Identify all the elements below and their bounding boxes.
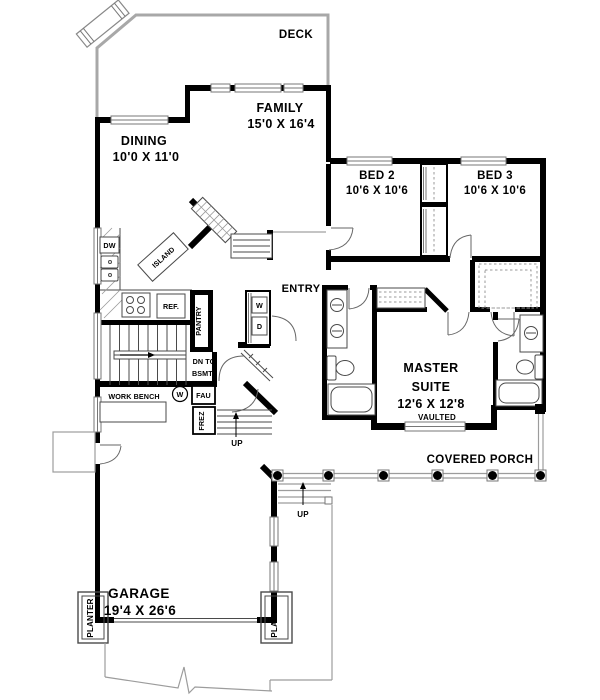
master-note: VAULTED <box>418 413 456 422</box>
fau-label: FAU <box>196 391 211 400</box>
laundry-closet: W D <box>246 291 270 345</box>
garage-label: GARAGE <box>108 586 170 601</box>
bed3-dims: 10'6 X 10'6 <box>464 185 526 197</box>
kitchen: DW REF. ISLAND PANTRY <box>100 228 213 352</box>
stove <box>122 293 150 317</box>
front-door <box>219 350 273 381</box>
fireplace <box>191 197 326 258</box>
dining-dims: 10'0 X 11'0 <box>113 150 180 164</box>
master-label-1: MASTER <box>403 361 458 375</box>
bed3-window <box>461 157 506 165</box>
bed2-label: BED 2 <box>359 170 395 182</box>
refrigerator: REF. <box>157 294 185 318</box>
bed2-dims: 10'6 X 10'6 <box>346 185 408 197</box>
garage-up-label: UP <box>231 439 243 448</box>
deck-label: DECK <box>279 29 313 41</box>
refrigerator-label: REF. <box>163 302 179 311</box>
covered-porch-label: COVERED PORCH <box>427 454 534 466</box>
deck-stairs <box>76 0 129 47</box>
island: ISLAND <box>138 233 188 281</box>
dining-window <box>111 116 168 124</box>
planter-left-label: PLANTER <box>86 598 95 637</box>
bed3-label: BED 3 <box>477 170 513 182</box>
master-dims: 12'6 X 12'8 <box>397 397 464 411</box>
bed2-window <box>347 157 392 165</box>
dishwasher: DW <box>100 237 119 253</box>
entry-porch-steps: UP <box>278 482 332 519</box>
kitchen-sink <box>101 256 118 281</box>
floor-plan-page: DW REF. ISLAND PANTRY <box>0 0 600 700</box>
dn-to-label: DN TO <box>193 357 216 366</box>
washer-circle-label: W <box>177 390 184 399</box>
work-bench-label: WORK BENCH <box>108 392 159 401</box>
dining-label: DINING <box>121 134 167 148</box>
entry-up-label: UP <box>297 510 309 519</box>
left-wall-windows <box>94 228 101 432</box>
pantry: PANTRY <box>190 290 213 352</box>
fau-unit: FAU <box>192 386 215 404</box>
garage-door <box>114 619 257 623</box>
master-bath <box>496 315 543 406</box>
entry-label: ENTRY <box>282 283 321 295</box>
freezer-unit: FREZ <box>193 407 215 434</box>
family-label: FAMILY <box>256 101 303 115</box>
master-wardrobe <box>377 288 425 308</box>
washer-label: W <box>256 301 263 310</box>
side-stoop <box>53 432 95 472</box>
family-window <box>211 84 303 92</box>
garage-dims: 19'4 X 26'6 <box>104 603 176 618</box>
bsmt-label: BSMT. <box>192 369 214 378</box>
family-dims: 15'0 X 16'4 <box>247 117 314 131</box>
utility-area: WORK BENCH W FAU FREZ UP <box>100 386 272 448</box>
floor-plan-drawing: DW REF. ISLAND PANTRY <box>0 0 600 700</box>
master-window <box>405 422 465 431</box>
dryer-label: D <box>257 322 262 331</box>
walkin-closet <box>479 264 537 308</box>
master-label-2: SUITE <box>412 380 451 394</box>
deck-outline <box>76 0 328 117</box>
dishwasher-label: DW <box>103 241 115 250</box>
freezer-label: FREZ <box>197 411 206 431</box>
planter-right-label: PLANTER <box>270 598 279 637</box>
porch-columns <box>272 470 546 481</box>
garage-entry-steps: UP <box>217 410 272 448</box>
pantry-label: PANTRY <box>194 306 203 335</box>
bedroom-closets <box>421 164 447 256</box>
